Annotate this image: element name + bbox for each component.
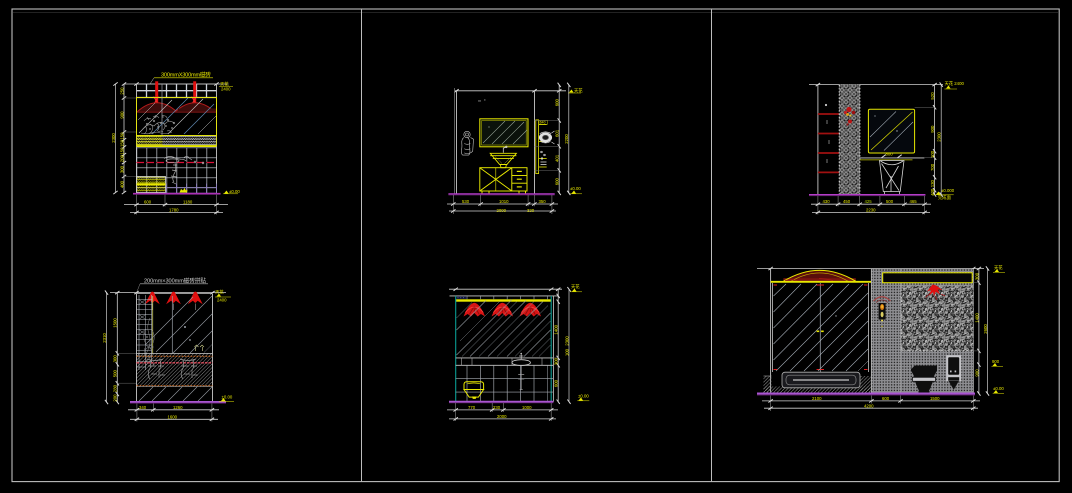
svg-text:230: 230: [493, 405, 501, 410]
svg-text:天花: 天花: [994, 264, 1003, 271]
svg-text:400: 400: [119, 180, 124, 188]
svg-text:300: 300: [113, 355, 118, 363]
svg-text:天花: 天花: [215, 288, 224, 295]
svg-text:601: 601: [555, 129, 560, 137]
svg-text:±0.00: ±0.00: [578, 393, 589, 398]
svg-text:401: 401: [555, 154, 560, 162]
svg-text:250: 250: [119, 87, 124, 95]
svg-text:150: 150: [119, 147, 124, 155]
svg-text:天花: 天花: [571, 283, 580, 290]
svg-text:600: 600: [882, 396, 890, 401]
svg-text:300: 300: [554, 357, 559, 365]
svg-text:1010: 1010: [499, 199, 509, 204]
svg-text:2000: 2000: [497, 208, 507, 213]
svg-text:1500: 1500: [113, 318, 118, 328]
svg-text:1260: 1260: [173, 405, 183, 410]
svg-text:±0.00: ±0.00: [993, 386, 1004, 391]
svg-text:200mm×300mm磁砖拼贴: 200mm×300mm磁砖拼贴: [144, 277, 206, 285]
svg-text:130: 130: [930, 180, 935, 188]
svg-text:1180: 1180: [183, 200, 193, 205]
svg-text:2300: 2300: [564, 336, 569, 346]
svg-text:100: 100: [564, 348, 569, 356]
svg-text:2300: 2300: [937, 132, 942, 142]
svg-text:700: 700: [930, 163, 935, 171]
svg-text:4200: 4200: [864, 403, 874, 408]
svg-text:600: 600: [555, 178, 560, 186]
svg-text:640: 640: [540, 121, 546, 125]
svg-text:150: 150: [119, 139, 124, 147]
svg-text:天花 2400: 天花 2400: [945, 80, 965, 87]
svg-text:300: 300: [119, 165, 124, 173]
svg-text:450: 450: [843, 199, 851, 204]
svg-text:2100: 2100: [812, 396, 822, 401]
svg-text:340: 340: [139, 405, 147, 410]
svg-text:200: 200: [119, 154, 124, 162]
svg-text:1400: 1400: [554, 324, 559, 334]
svg-text:465: 465: [910, 199, 918, 204]
svg-text:320: 320: [527, 208, 535, 213]
svg-text:100: 100: [930, 150, 935, 158]
svg-text:900: 900: [930, 125, 935, 133]
svg-text:1000: 1000: [522, 405, 532, 410]
svg-text:520: 520: [930, 92, 935, 100]
svg-text:200: 200: [113, 394, 118, 402]
svg-text:500: 500: [113, 370, 118, 378]
svg-text:2200: 2200: [564, 134, 569, 144]
svg-text:350: 350: [539, 199, 547, 204]
svg-text:425: 425: [865, 199, 873, 204]
svg-text:300: 300: [974, 272, 979, 280]
svg-text:800: 800: [886, 152, 894, 157]
svg-text:2000: 2000: [497, 414, 507, 419]
svg-text:2300: 2300: [111, 133, 116, 143]
svg-text:2400: 2400: [221, 87, 231, 92]
svg-text:2600: 2600: [983, 324, 988, 334]
svg-text:900: 900: [992, 359, 1000, 364]
svg-text:完成面: 完成面: [938, 194, 952, 201]
svg-text:2310: 2310: [102, 333, 107, 343]
svg-text:1500: 1500: [930, 396, 940, 401]
svg-text:280: 280: [113, 384, 118, 392]
svg-text:±0.000: ±0.000: [941, 188, 955, 193]
svg-text:600: 600: [554, 379, 559, 387]
svg-text:2400: 2400: [217, 298, 227, 303]
svg-text:600: 600: [555, 99, 560, 107]
svg-text:400: 400: [930, 188, 935, 196]
svg-text:430: 430: [823, 199, 831, 204]
svg-text:300mmX300mm磁砖: 300mmX300mm磁砖: [161, 71, 211, 79]
svg-text:1600: 1600: [168, 415, 178, 420]
svg-text:1400: 1400: [974, 313, 979, 323]
svg-text:530: 530: [462, 199, 470, 204]
svg-text:900: 900: [974, 369, 979, 377]
svg-text:150: 150: [119, 132, 124, 140]
svg-text:770: 770: [468, 405, 476, 410]
svg-text:±0.00: ±0.00: [222, 394, 233, 399]
svg-text:900: 900: [119, 111, 124, 119]
svg-text:2230: 2230: [866, 208, 876, 213]
svg-text:±0.00: ±0.00: [229, 189, 240, 194]
svg-text:1780: 1780: [169, 207, 179, 212]
svg-text:600: 600: [144, 200, 152, 205]
svg-text:500: 500: [886, 199, 894, 204]
svg-text:±0.00: ±0.00: [570, 186, 581, 191]
